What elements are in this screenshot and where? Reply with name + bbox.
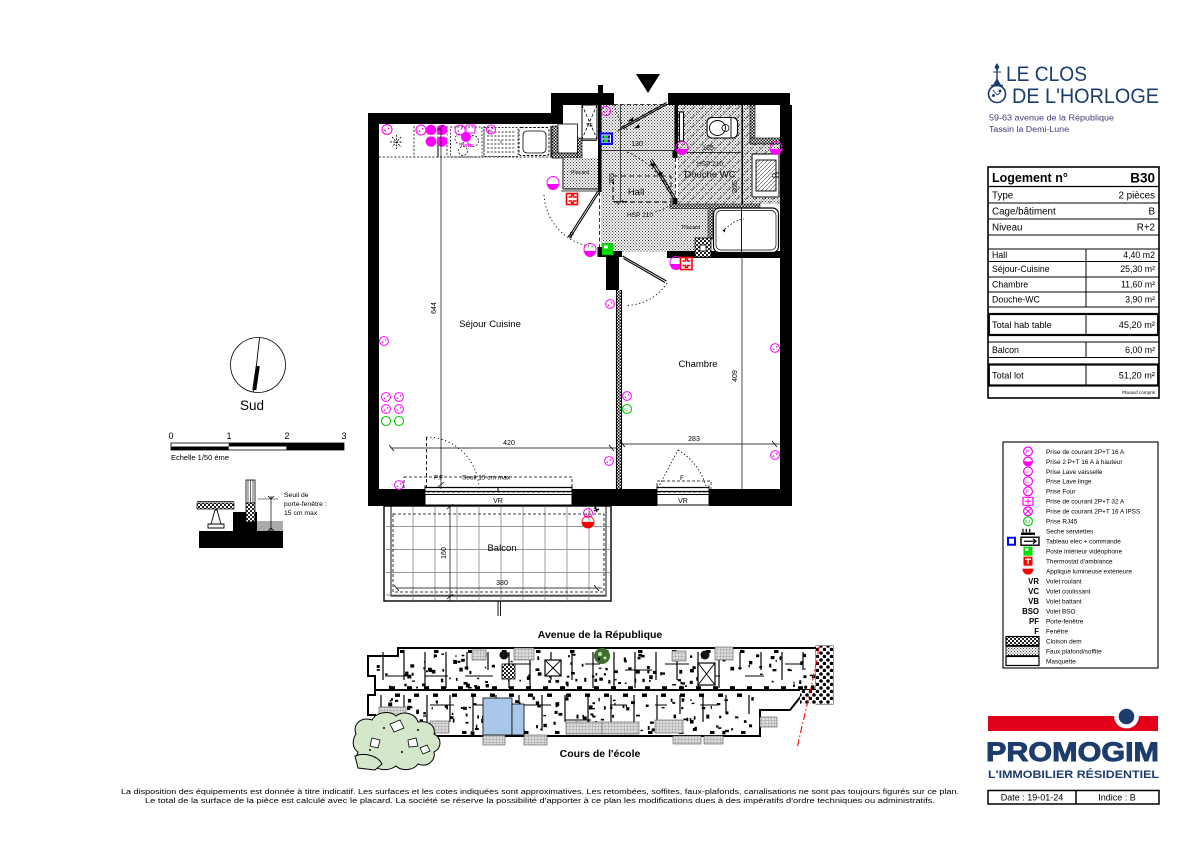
svg-text:265: 265 [609, 173, 616, 185]
svg-text:160: 160 [441, 547, 448, 559]
svg-text:Seche serviettes: Seche serviettes [1046, 529, 1093, 536]
svg-text:porte-fenêtre :: porte-fenêtre : [284, 501, 327, 508]
svg-text:6,00 m²: 6,00 m² [1125, 345, 1155, 355]
svg-text:2: 2 [284, 431, 289, 441]
svg-text:Seuil de: Seuil de [284, 492, 309, 499]
svg-text:15 cm max: 15 cm max [284, 510, 318, 517]
svg-text:RJ: RJ [1025, 519, 1030, 524]
svg-text:380: 380 [496, 580, 508, 587]
svg-text:Tableau elec + commande: Tableau elec + commande [1046, 539, 1121, 546]
svg-text:LL: LL [1025, 479, 1030, 484]
svg-text:Douche-WC: Douche-WC [992, 295, 1041, 305]
svg-text:25,30 m²: 25,30 m² [1120, 264, 1155, 274]
svg-text:DE L'HORLOGE: DE L'HORLOGE [1012, 84, 1159, 108]
svg-text:Balcon: Balcon [992, 345, 1019, 355]
svg-text:La disposition des équipements: La disposition des équipements est donné… [121, 789, 959, 796]
svg-text:Séjour Cuisine: Séjour Cuisine [459, 319, 521, 330]
svg-text:Volet BSO: Volet BSO [1046, 608, 1076, 615]
svg-text:644: 644 [431, 302, 438, 314]
svg-text:Niveau: Niveau [992, 223, 1023, 234]
svg-text:265: 265 [732, 181, 739, 193]
svg-text:F: F [680, 475, 684, 482]
svg-text:Prise Lave linge: Prise Lave linge [1046, 479, 1092, 486]
svg-text:BSO: BSO [1022, 607, 1039, 616]
svg-text:90: 90 [568, 231, 577, 240]
svg-text:Prise de courant 2P+T 32 A: Prise de courant 2P+T 32 A [1046, 499, 1125, 506]
svg-text:4,40 m2: 4,40 m2 [1123, 250, 1155, 260]
svg-text:1: 1 [226, 431, 231, 441]
svg-text:283: 283 [688, 436, 700, 443]
svg-text:F: F [1034, 627, 1039, 636]
svg-text:PF: PF [1029, 617, 1039, 626]
svg-text:VR: VR [493, 498, 503, 505]
svg-text:Volet coulissant: Volet coulissant [1046, 589, 1091, 596]
svg-text:B: B [1148, 207, 1155, 218]
svg-text:Fenêtre: Fenêtre [1046, 628, 1068, 635]
svg-text:Prise de courant 2P+T 16 A IPS: Prise de courant 2P+T 16 A IPSS [1046, 509, 1140, 516]
svg-text:Hall: Hall [628, 187, 644, 198]
svg-text:VR: VR [678, 498, 688, 505]
svg-text:Volet roulant: Volet roulant [1046, 579, 1082, 586]
svg-text:Séjour-Cuisine: Séjour-Cuisine [992, 264, 1050, 274]
svg-text:Poste intérieur vidéophone: Poste intérieur vidéophone [1046, 549, 1122, 556]
svg-text:Applique lumineuse extérieure: Applique lumineuse extérieure [1046, 569, 1132, 576]
svg-text:3,90 m²: 3,90 m² [1125, 295, 1155, 305]
svg-text:Placard compris: Placard compris [1122, 390, 1156, 395]
svg-text:Cloison dem: Cloison dem [1046, 638, 1082, 645]
svg-text:Placard: Placard [571, 170, 589, 176]
svg-text:Placard: Placard [682, 225, 700, 231]
svg-text:VC: VC [1028, 587, 1039, 596]
svg-text:Sud: Sud [240, 398, 264, 413]
svg-text:TE: TE [586, 123, 593, 129]
svg-text:Prise 2 P+T 16 A à hauteur: Prise 2 P+T 16 A à hauteur [1046, 459, 1123, 466]
svg-text:VR: VR [1028, 577, 1039, 586]
svg-text:Logement n°: Logement n° [992, 171, 1068, 185]
svg-text:59-63 avenue de la République: 59-63 avenue de la République [989, 114, 1115, 123]
svg-text:Faux plafond/soffite: Faux plafond/soffite [1046, 648, 1102, 655]
svg-text:Porte-fenêtre: Porte-fenêtre [1046, 618, 1084, 625]
svg-text:HSP 210: HSP 210 [697, 161, 723, 168]
svg-text:Hotte: Hotte [461, 143, 474, 149]
svg-text:Tassin la Demi-Lune: Tassin la Demi-Lune [989, 125, 1070, 134]
svg-text:Cours de l'école: Cours de l'école [560, 748, 641, 760]
svg-text:P.F: P.F [434, 475, 443, 482]
svg-text:HSP 210: HSP 210 [627, 212, 653, 219]
svg-text:Hall: Hall [992, 250, 1007, 260]
svg-text:Chambre: Chambre [678, 359, 717, 370]
svg-text:Prise Lave vaisselle: Prise Lave vaisselle [1046, 469, 1103, 476]
svg-text:Type: Type [992, 191, 1014, 202]
svg-text:VB: VB [1028, 597, 1039, 606]
svg-text:LE CLOS: LE CLOS [1006, 62, 1087, 86]
svg-text:Le total de la surface de la p: Le total de la surface de la pièce est c… [145, 798, 935, 805]
svg-text:L'IMMOBILIER RÉSIDENTIEL: L'IMMOBILIER RÉSIDENTIEL [988, 768, 1159, 781]
svg-text:Total lot: Total lot [992, 371, 1024, 381]
svg-text:51,20 m²: 51,20 m² [1119, 371, 1155, 381]
svg-text:Cage/bâtiment: Cage/bâtiment [992, 207, 1056, 218]
svg-text:LV: LV [1025, 469, 1030, 474]
svg-text:PROMOGIM: PROMOGIM [986, 737, 1159, 767]
svg-text:Masquette: Masquette [1046, 658, 1076, 665]
svg-text:Echelle 1/50 ème: Echelle 1/50 ème [171, 453, 229, 462]
svg-text:130: 130 [631, 141, 643, 148]
svg-text:0: 0 [168, 431, 173, 441]
svg-text:Balcon: Balcon [487, 543, 516, 554]
svg-text:420: 420 [503, 440, 515, 447]
svg-text:Avenue de la République: Avenue de la République [538, 629, 663, 641]
svg-text:185: 185 [702, 145, 714, 152]
svg-text:FOUR: FOUR [456, 129, 467, 133]
svg-text:Date : 19-01-24: Date : 19-01-24 [1001, 793, 1064, 803]
svg-text:Total hab table: Total hab table [992, 320, 1052, 330]
svg-text:RJ: RJ [624, 408, 629, 412]
svg-text:F: F [1026, 490, 1029, 496]
svg-text:409: 409 [732, 370, 739, 382]
svg-text:R+2: R+2 [1137, 223, 1155, 234]
svg-text:2 pièces: 2 pièces [1119, 191, 1156, 202]
svg-text:Douche WC: Douche WC [684, 170, 735, 181]
svg-text:Prise Four: Prise Four [1046, 489, 1076, 496]
svg-text:B30: B30 [1130, 171, 1155, 186]
svg-text:Indice : B: Indice : B [1098, 793, 1136, 803]
svg-text:Prise RJ45: Prise RJ45 [1046, 519, 1078, 526]
svg-text:3: 3 [341, 431, 346, 441]
svg-text:11,60 m²: 11,60 m² [1121, 280, 1155, 290]
svg-text:Prise de courant 2P+T 16 A: Prise de courant 2P+T 16 A [1046, 449, 1125, 456]
svg-text:Volet battant: Volet battant [1046, 599, 1082, 606]
svg-text:Seuil 15 cm max: Seuil 15 cm max [462, 475, 511, 482]
svg-text:Chambre: Chambre [992, 280, 1028, 290]
svg-text:45,20 m²: 45,20 m² [1119, 320, 1155, 330]
svg-text:Thermostat d'ambiance: Thermostat d'ambiance [1046, 559, 1113, 566]
